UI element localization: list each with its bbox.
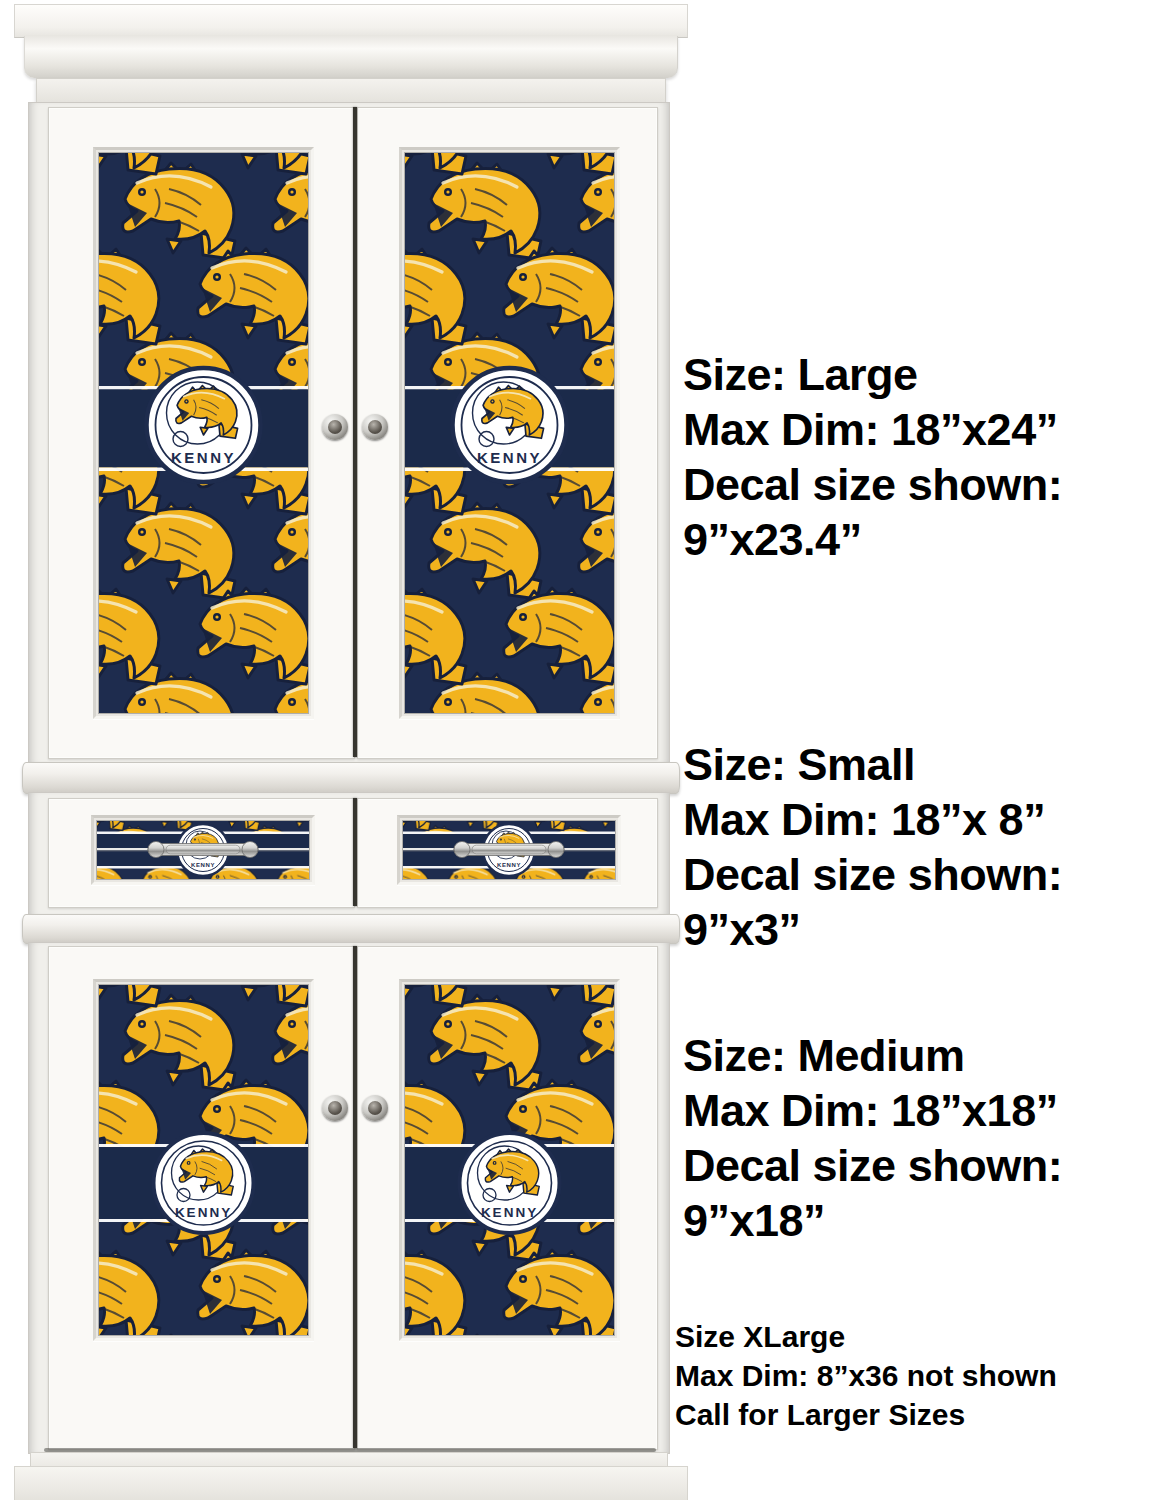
brand-badge: KENNY	[460, 1133, 560, 1233]
lower-right-door-knob	[362, 1095, 388, 1121]
badge-name-text: KENNY	[171, 449, 236, 466]
fish-pattern-decal-medium-right: KENNY	[405, 985, 614, 1335]
size-note-line: Max Dim: 8”x36 not shown	[675, 1356, 1057, 1395]
fish-pattern-decal-small-right: KENNY	[403, 821, 615, 879]
fish-pattern-decal-large-left: KENNY	[99, 153, 308, 713]
product-mockup: KENNY KENNY	[0, 0, 1151, 1500]
size-info-line: Decal size shown:	[683, 847, 1062, 902]
lower-right-decal-recess: KENNY	[399, 979, 620, 1341]
right-drawer-decal-recess: KENNY	[397, 815, 621, 885]
cabinet: KENNY KENNY	[0, 0, 700, 1500]
upper-left-decal-recess: KENNY	[93, 147, 314, 719]
badge-name-text: KENNY	[175, 1205, 232, 1220]
size-info-large: Size: Large Max Dim: 18”x24” Decal size …	[683, 347, 1062, 567]
mid-molding-lower	[22, 914, 680, 944]
brand-badge: KENNY	[453, 368, 567, 482]
plinth-base	[14, 1466, 688, 1500]
upper-right-door-knob	[362, 414, 388, 440]
brand-badge: KENNY	[154, 1133, 254, 1233]
size-note-line: Size XLarge	[675, 1317, 1057, 1356]
fish-pattern-decal-medium-left: KENNY	[99, 985, 308, 1335]
upper-right-decal-recess: KENNY	[399, 147, 620, 719]
size-info-line: 9”x18”	[683, 1193, 1062, 1248]
mid-molding-upper	[22, 762, 680, 794]
upper-left-door-knob	[322, 414, 348, 440]
crown-molding-cove	[24, 36, 678, 78]
size-info-line: Size: Medium	[683, 1028, 1062, 1083]
size-info-line: Size: Small	[683, 737, 1062, 792]
lower-left-door-knob	[322, 1095, 348, 1121]
size-info-line: Size: Large	[683, 347, 1062, 402]
size-info-line: Max Dim: 18”x18”	[683, 1083, 1062, 1138]
size-note-line: Call for Larger Sizes	[675, 1395, 1057, 1434]
drawer-gap	[353, 798, 357, 906]
lower-left-decal-recess: KENNY	[93, 979, 314, 1341]
size-info-medium: Size: Medium Max Dim: 18”x18” Decal size…	[683, 1028, 1062, 1248]
badge-name-text: KENNY	[191, 862, 215, 868]
size-info-line: Decal size shown:	[683, 457, 1062, 512]
badge-name-text: KENNY	[497, 862, 521, 868]
badge-name-text: KENNY	[477, 449, 542, 466]
size-info-line: Max Dim: 18”x24”	[683, 402, 1062, 457]
crown-molding-top	[14, 4, 688, 38]
size-info-small: Size: Small Max Dim: 18”x 8” Decal size …	[683, 737, 1062, 957]
upper-door-gap	[353, 107, 357, 757]
brand-badge: KENNY	[147, 368, 261, 482]
fish-pattern-decal-large-right: KENNY	[405, 153, 614, 713]
size-info-line: 9”x23.4”	[683, 512, 1062, 567]
badge-name-text: KENNY	[481, 1205, 538, 1220]
size-info-line: 9”x3”	[683, 902, 1062, 957]
lower-door-gap	[353, 946, 357, 1448]
size-info-line: Max Dim: 18”x 8”	[683, 792, 1062, 847]
fish-pattern-decal-small-left: KENNY	[97, 821, 309, 879]
left-drawer-decal-recess: KENNY	[91, 815, 315, 885]
size-info-line: Decal size shown:	[683, 1138, 1062, 1193]
size-info-xlarge-note: Size XLarge Max Dim: 8”x36 not shown Cal…	[675, 1317, 1057, 1434]
